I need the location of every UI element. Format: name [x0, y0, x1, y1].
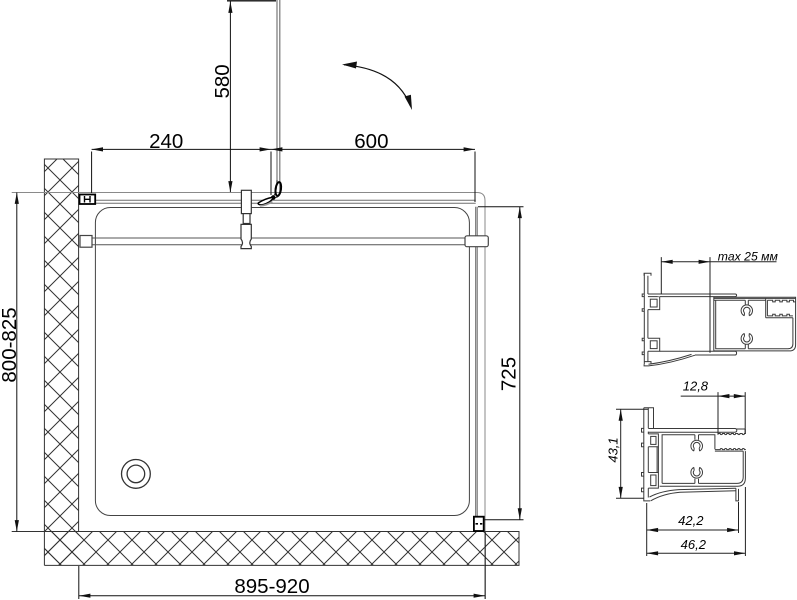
svg-text:800-825: 800-825 [0, 307, 21, 382]
svg-text:46,2: 46,2 [681, 537, 707, 552]
svg-text:42,2: 42,2 [678, 513, 704, 528]
svg-text:895-920: 895-920 [234, 575, 309, 598]
svg-text:max 25 мм: max 25 мм [718, 249, 779, 263]
svg-text:12,8: 12,8 [683, 379, 709, 394]
svg-text:43,1: 43,1 [606, 437, 621, 462]
svg-text:600: 600 [354, 130, 388, 153]
svg-text:725: 725 [498, 357, 521, 391]
svg-text:580: 580 [211, 64, 234, 98]
svg-text:240: 240 [149, 130, 183, 153]
